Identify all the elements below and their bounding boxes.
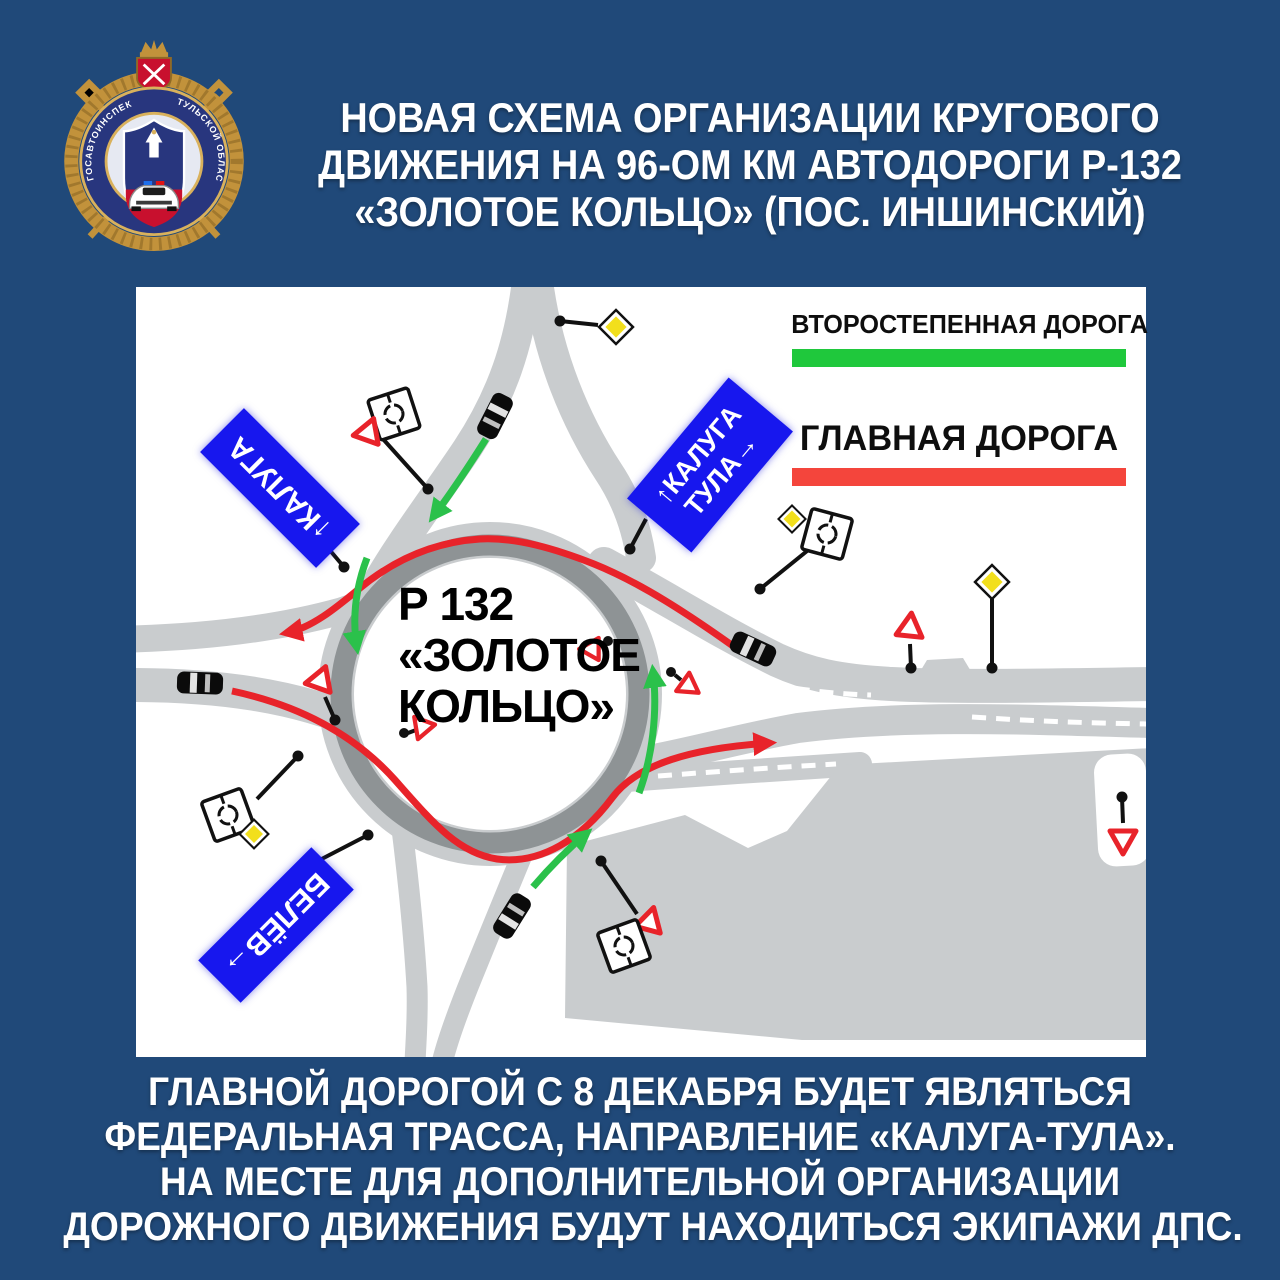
title-line-1: НОВАЯ СХЕМА ОРГАНИЗАЦИИ КРУГОВОГО — [318, 94, 1182, 141]
legend-secondary-bar — [792, 349, 1126, 367]
give-way-sign-icon — [896, 612, 924, 638]
priority-road-sign-icon — [975, 565, 1009, 599]
legend-main-label: ГЛАВНАЯ ДОРОГА — [789, 419, 1128, 459]
legend: ВТОРОСТЕПЕННАЯ ДОРОГА ГЛАВНАЯ ДОРОГА — [786, 309, 1132, 486]
emblem-shield — [124, 120, 184, 227]
footer-line-4: ДОРОЖНОГО ДВИЖЕНИЯ БУДУТ НАХОДИТЬСЯ ЭКИП… — [63, 1205, 1216, 1250]
ring-label: Р 132 «ЗОЛОТОЕ КОЛЬЦО» — [398, 579, 640, 732]
priority-road-sign-icon — [599, 310, 633, 344]
ring-label-line-3: КОЛЬЦО» — [398, 681, 640, 732]
sign-post — [555, 316, 599, 327]
ring-label-line-2: «ЗОЛОТОЕ — [398, 630, 640, 681]
footer-line-2: ФЕДЕРАЛЬНАЯ ТРАССА, НАПРАВЛЕНИЕ «КАЛУГА-… — [63, 1115, 1216, 1160]
footer-line-1: ГЛАВНОЙ ДОРОГОЙ С 8 ДЕКАБРЯ БУДЕТ ЯВЛЯТЬ… — [63, 1070, 1216, 1115]
sign-post — [257, 751, 304, 800]
legend-main-bar — [792, 468, 1126, 486]
sign-post — [755, 547, 813, 595]
title-line-3: «ЗОЛОТОЕ КОЛЬЦО» (ПОС. ИНШИНСКИЙ) — [318, 188, 1182, 235]
sign-post — [906, 644, 917, 674]
legend-secondary-label: ВТОРОСТЕПЕННАЯ ДОРОГА — [791, 309, 1127, 340]
paved-area — [565, 748, 1146, 1040]
priority-road-sign-icon — [778, 505, 805, 532]
roundabout-sign-icon — [801, 508, 852, 559]
footer-text: ГЛАВНОЙ ДОРОГОЙ С 8 ДЕКАБРЯ БУДЕТ ЯВЛЯТЬ… — [20, 1070, 1260, 1250]
scheme-panel: Р 132 «ЗОЛОТОЕ КОЛЬЦО» ВТОРОСТЕПЕННАЯ ДО… — [136, 287, 1146, 1057]
sign-post — [383, 439, 434, 495]
gibdd-emblem: ГОСАВТОИНСПЕКЦИЯ ТУЛЬСКОЙ ОБЛАСТИ — [60, 36, 248, 264]
bus-pocket — [915, 658, 975, 680]
poster: ГОСАВТОИНСПЕКЦИЯ ТУЛЬСКОЙ ОБЛАСТИ — [0, 0, 1280, 1280]
give-way-sign-icon — [351, 419, 378, 449]
sign-post — [987, 599, 998, 674]
page-title: НОВАЯ СХЕМА ОРГАНИЗАЦИИ КРУГОВОГО ДВИЖЕН… — [270, 94, 1230, 235]
sign-post — [666, 667, 681, 680]
title-line-2: ДВИЖЕНИЯ НА 96-ОМ КМ АВТОДОРОГИ Р-132 — [318, 141, 1182, 188]
footer-line-3: НА МЕСТЕ ДЛЯ ДОПОЛНИТЕЛЬНОЙ ОРГАНИЗАЦИИ — [63, 1160, 1216, 1205]
tula-crest-icon — [137, 40, 171, 92]
car-icon — [177, 671, 224, 695]
ring-label-line-1: Р 132 — [398, 579, 640, 630]
road-upper-right — [604, 564, 1146, 686]
